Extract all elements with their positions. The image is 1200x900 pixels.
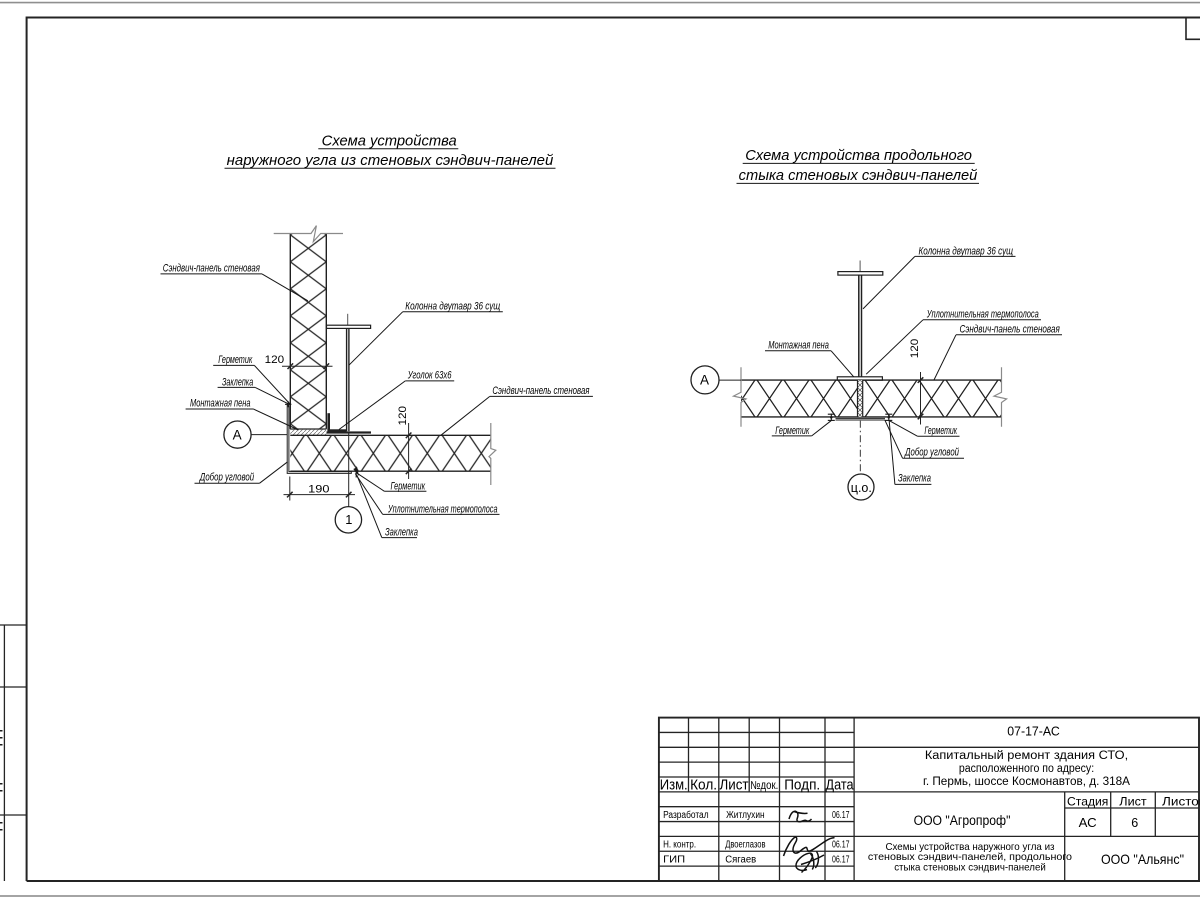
svg-text:190: 190 [308, 484, 329, 496]
svg-text:06.17: 06.17 [832, 839, 850, 851]
svg-text:1: 1 [345, 512, 352, 527]
svg-text:120: 120 [909, 339, 921, 359]
svg-text:Разработал: Разработал [663, 809, 709, 821]
svg-text:ГИП: ГИП [663, 855, 685, 866]
svg-text:Герметик: Герметик [924, 425, 957, 437]
svg-text:№док.: №док. [750, 780, 778, 792]
svg-text:Схема устройства продольного: Схема устройства продольного [745, 148, 972, 164]
svg-text:06.17: 06.17 [832, 854, 850, 866]
svg-text:Житлухин: Житлухин [726, 810, 765, 821]
svg-text:стыка стеновых сэндвич-панелей: стыка стеновых сэндвич-панелей [739, 168, 978, 184]
svg-text:Заклепка: Заклепка [385, 527, 418, 539]
svg-text:Уплотнительная термополоса: Уплотнительная термополоса [926, 309, 1039, 321]
svg-text:Герметик: Герметик [775, 425, 810, 437]
svg-text:А: А [700, 373, 709, 388]
svg-text:Добор угловой: Добор угловой [904, 447, 959, 459]
svg-text:Колонна двутавр 36 сущ: Колонна двутавр 36 сущ [405, 300, 500, 312]
svg-text:Сэндвич-панель стеновая: Сэндвич-панель стеновая [492, 385, 589, 397]
svg-text:Н. контр.: Н. контр. [663, 840, 696, 851]
svg-text:АС: АС [1079, 816, 1097, 830]
svg-text:Колонна двутавр 36 сущ: Колонна двутавр 36 сущ [919, 245, 1014, 257]
svg-text:Капитальный ремонт здания СТО,: Капитальный ремонт здания СТО, [925, 750, 1128, 762]
svg-text:Заклепка: Заклепка [898, 472, 931, 484]
svg-text:Лист: Лист [720, 776, 749, 793]
svg-text:Изм.: Изм. [660, 776, 688, 793]
svg-text:Добор угловой: Добор угловой [198, 472, 254, 484]
svg-text:Герметик: Герметик [218, 354, 253, 366]
svg-text:120: 120 [397, 406, 409, 426]
svg-text:Сэндвич-панель стеновая: Сэндвич-панель стеновая [960, 324, 1060, 336]
svg-text:Заклепка: Заклепка [222, 376, 253, 388]
svg-text:07-17-АС: 07-17-АС [1007, 724, 1060, 738]
svg-text:ООО "Агропроф": ООО "Агропроф" [914, 813, 1011, 828]
svg-text:Лист: Лист [1119, 795, 1147, 809]
svg-text:Сэндвич-панель стеновая: Сэндвич-панель стеновая [163, 263, 260, 275]
svg-text:г. Пермь, шоссе Космонавтов, д: г. Пермь, шоссе Космонавтов, д. 318А [923, 776, 1130, 788]
svg-text:Уголок 63х6: Уголок 63х6 [407, 369, 452, 381]
svg-text:Листов: Листов [1162, 795, 1200, 809]
svg-text:А: А [233, 427, 242, 442]
svg-text:Кол.: Кол. [690, 776, 717, 793]
svg-text:Дата: Дата [826, 776, 855, 793]
svg-text:Герметик: Герметик [391, 480, 426, 492]
svg-text:наружного угла из стеновых сэн: наружного угла из стеновых сэндвич-панел… [227, 153, 554, 169]
svg-text:06.17: 06.17 [832, 809, 850, 821]
svg-text:6: 6 [1131, 816, 1138, 830]
svg-text:120: 120 [265, 354, 285, 366]
svg-text:Двоеглазов: Двоеглазов [725, 840, 765, 851]
svg-text:Сягаев: Сягаев [725, 855, 756, 866]
svg-text:Стадия: Стадия [1067, 795, 1108, 809]
svg-text:ц.о.: ц.о. [851, 481, 872, 495]
svg-text:Монтажная пена: Монтажная пена [768, 340, 829, 352]
svg-text:Монтажная пена: Монтажная пена [190, 398, 251, 410]
svg-text:Уплотнительная термополоса: Уплотнительная термополоса [387, 503, 497, 515]
svg-text:Схема устройства: Схема устройства [322, 134, 457, 150]
svg-text:ООО "Альянс": ООО "Альянс" [1101, 851, 1184, 867]
svg-text:стыка стеновых сэндвич-панелей: стыка стеновых сэндвич-панелей [894, 861, 1046, 873]
svg-text:расположенного по адресу:: расположенного по адресу: [959, 763, 1094, 775]
svg-text:Подп.: Подп. [784, 776, 820, 793]
